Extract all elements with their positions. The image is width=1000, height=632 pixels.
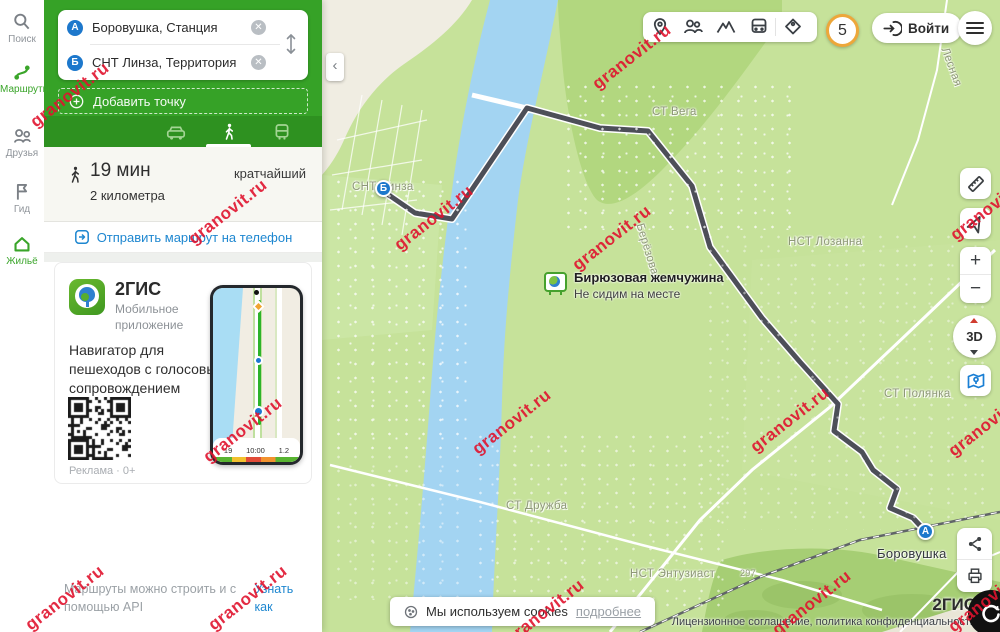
home-icon bbox=[12, 234, 32, 254]
share-print-control bbox=[957, 528, 992, 592]
login-label: Войти bbox=[908, 21, 949, 36]
map-area-label: НСТ Лозанна bbox=[788, 236, 862, 248]
cookie-banner: Мы используем cookies подробнее bbox=[390, 597, 655, 626]
phone-traffic-bar bbox=[213, 457, 300, 462]
map-area-label: СТ Полянка bbox=[884, 388, 951, 400]
plus-circle-icon bbox=[69, 94, 84, 109]
friends-button[interactable] bbox=[676, 12, 709, 42]
promo-ad-mark: Реклама · 0+ bbox=[69, 465, 135, 477]
swap-points-button[interactable] bbox=[283, 31, 303, 59]
bus-icon bbox=[273, 123, 291, 141]
send-to-phone-icon bbox=[74, 229, 90, 245]
mountains-button[interactable] bbox=[709, 12, 742, 42]
sights-button[interactable] bbox=[643, 12, 676, 42]
sidebar-item-label: Друзья bbox=[0, 148, 44, 159]
sidebar-item-guide[interactable]: Гид bbox=[0, 182, 44, 215]
route-to-input[interactable] bbox=[92, 55, 247, 70]
friends-icon bbox=[12, 126, 32, 146]
tab-pedestrian[interactable] bbox=[202, 116, 255, 147]
phone-mockup: 19 10:00 1.2 bbox=[210, 285, 303, 465]
phone-position-dot bbox=[253, 406, 264, 417]
menu-button[interactable] bbox=[958, 11, 992, 45]
route-marker-б[interactable]: Б bbox=[375, 180, 392, 197]
3d-label: 3D bbox=[966, 329, 983, 344]
legal-links[interactable]: Лицензионное соглашение, политика конфид… bbox=[672, 616, 976, 628]
houses-dots bbox=[330, 450, 460, 600]
phone-arrival: 10:00 bbox=[246, 446, 265, 455]
point-b-badge: Б bbox=[67, 55, 83, 71]
separator bbox=[44, 253, 322, 262]
advert-title: Бирюзовая жемчужина bbox=[574, 270, 724, 285]
ruler-button[interactable] bbox=[960, 168, 991, 199]
2gis-logo-icon bbox=[69, 279, 105, 315]
sidebar-item-routes[interactable]: Маршруты bbox=[0, 62, 44, 95]
mountains-icon bbox=[715, 16, 737, 38]
route-icon bbox=[12, 62, 32, 82]
advert-subtitle: Не сидим на месте bbox=[574, 287, 724, 301]
phone-stop-dot bbox=[254, 356, 263, 365]
route-input-row-a: А ✕ bbox=[58, 10, 308, 45]
car-icon bbox=[165, 123, 187, 141]
pedestrian-icon bbox=[222, 122, 236, 142]
panel-collapse-button[interactable]: ‹ bbox=[326, 53, 344, 81]
transport-button[interactable] bbox=[742, 12, 775, 42]
map-area-label: 297 bbox=[740, 568, 756, 578]
flag-icon bbox=[12, 182, 32, 202]
cookie-more-link[interactable]: подробнее bbox=[576, 604, 641, 619]
send-to-phone-link[interactable]: Отправить маршрут на телефон bbox=[44, 222, 322, 253]
phone-screen: 19 10:00 1.2 bbox=[213, 288, 300, 462]
advert-poi[interactable]: Бирюзовая жемчужина Не сидим на месте bbox=[544, 270, 724, 301]
tag-icon bbox=[782, 16, 804, 38]
promo-text: Навигатор для пешеходов с голосовым сопр… bbox=[69, 341, 227, 398]
swirl-arrow-icon bbox=[978, 600, 1000, 626]
phone-distance: 1.2 bbox=[279, 446, 289, 455]
print-icon bbox=[965, 566, 985, 586]
location-arrow-icon bbox=[965, 213, 987, 235]
billboard-icon bbox=[544, 272, 567, 292]
my-location-button[interactable] bbox=[960, 208, 991, 239]
qr-code bbox=[68, 397, 131, 460]
route-panel: А ✕ Б ✕ Добавить bbox=[44, 0, 322, 632]
map-area-label: СТ Дружба bbox=[506, 500, 567, 512]
api-learn-link[interactable]: Узнать как bbox=[254, 581, 304, 616]
3d-tilt-control[interactable]: 3D bbox=[953, 315, 996, 358]
route-distance: 2 километра bbox=[90, 188, 165, 203]
houses-dots bbox=[702, 230, 992, 530]
brand-logo-text: 2ГИС bbox=[672, 595, 976, 615]
route-inputs-card: А ✕ Б ✕ bbox=[58, 10, 308, 80]
sights-icon bbox=[649, 16, 671, 38]
left-nav-rail: Поиск Маршруты Друзья Гид Жильё bbox=[0, 0, 44, 632]
map-attribution: 2ГИС Лицензионное соглашение, политика к… bbox=[672, 595, 976, 628]
route-duration: 19 мин bbox=[90, 160, 151, 182]
tab-transit[interactable] bbox=[255, 116, 308, 147]
route-kind: кратчайший bbox=[234, 166, 306, 181]
promo-header: 2ГИС Мобильное приложение bbox=[69, 279, 205, 333]
quick-categories-bar bbox=[643, 12, 817, 42]
send-to-phone-label: Отправить маршрут на телефон bbox=[97, 230, 293, 245]
phone-eta: 19 bbox=[224, 446, 232, 455]
print-button[interactable] bbox=[957, 560, 992, 592]
bus-icon bbox=[748, 16, 770, 38]
api-footer: Маршруты можно строить и с помощью API У… bbox=[44, 569, 322, 632]
sidebar-item-housing[interactable]: Жильё bbox=[0, 234, 44, 267]
share-button[interactable] bbox=[957, 528, 992, 560]
map-canvas[interactable]: СТ ВегаСНТ ЛинзаНСТ ЛозаннаСТ ПолянкаСТ … bbox=[322, 0, 1000, 632]
zoom-out-button[interactable]: − bbox=[960, 275, 991, 303]
route-panel-header: А ✕ Б ✕ Добавить bbox=[44, 0, 322, 147]
friends-icon bbox=[682, 16, 704, 38]
clear-b-icon[interactable]: ✕ bbox=[251, 55, 266, 70]
houses-dots bbox=[472, 430, 732, 610]
route-marker-а[interactable]: А bbox=[917, 523, 934, 540]
discounts-button[interactable] bbox=[776, 12, 809, 42]
cookie-icon bbox=[404, 605, 418, 619]
sidebar-item-search[interactable]: Поиск bbox=[0, 12, 44, 45]
map-area-label: СТ Вега bbox=[652, 106, 697, 118]
route-input-row-b: Б ✕ bbox=[58, 45, 308, 80]
login-icon bbox=[881, 18, 902, 39]
app-promo-card: 2ГИС Мобильное приложение Навигатор для … bbox=[54, 262, 312, 484]
api-note-text: Маршруты можно строить и с помощью API bbox=[64, 581, 240, 616]
login-button[interactable]: Войти bbox=[872, 13, 962, 43]
map-area-label: НСТ Энтузиаст bbox=[630, 568, 715, 580]
cookie-text: Мы используем cookies bbox=[426, 604, 568, 619]
add-point-label: Добавить точку bbox=[93, 94, 186, 109]
sidebar-item-label: Гид bbox=[0, 204, 44, 215]
sidebar-item-label: Поиск bbox=[0, 34, 44, 45]
tilt-down-icon[interactable] bbox=[970, 350, 978, 355]
ruler-icon bbox=[965, 173, 987, 195]
route-from-input[interactable] bbox=[92, 20, 247, 35]
promo-app-name: 2ГИС bbox=[115, 279, 205, 300]
sidebar-item-label: Жильё bbox=[0, 256, 44, 267]
map-pin-layers-icon bbox=[965, 370, 987, 392]
point-a-badge: А bbox=[67, 20, 83, 36]
add-point-button[interactable]: Добавить точку bbox=[58, 88, 308, 114]
tilt-up-icon[interactable] bbox=[970, 318, 978, 323]
houses-dots bbox=[330, 175, 472, 450]
notifications-badge[interactable]: 5 bbox=[826, 14, 859, 47]
transport-mode-tabs bbox=[44, 116, 322, 147]
sidebar-item-label: Маршруты bbox=[0, 84, 44, 95]
share-icon bbox=[965, 534, 985, 554]
zoom-in-button[interactable]: + bbox=[960, 247, 991, 275]
tab-car[interactable] bbox=[149, 116, 202, 147]
search-icon bbox=[12, 12, 32, 32]
swap-arrows-icon bbox=[283, 31, 299, 57]
clear-a-icon[interactable]: ✕ bbox=[251, 20, 266, 35]
pedestrian-icon bbox=[68, 166, 82, 184]
promo-app-subtitle: Мобильное приложение bbox=[115, 302, 205, 333]
houses-dots bbox=[560, 80, 800, 230]
zoom-control: + − bbox=[960, 247, 991, 303]
map-layers-button[interactable] bbox=[960, 365, 991, 396]
map-area-label: Боровушка bbox=[877, 546, 947, 561]
app-window: СТ ВегаСНТ ЛинзаНСТ ЛозаннаСТ ПолянкаСТ … bbox=[0, 0, 1000, 632]
sidebar-item-friends[interactable]: Друзья bbox=[0, 126, 44, 159]
hamburger-icon bbox=[966, 21, 984, 35]
route-summary: 19 мин кратчайший 2 километра bbox=[44, 147, 322, 222]
